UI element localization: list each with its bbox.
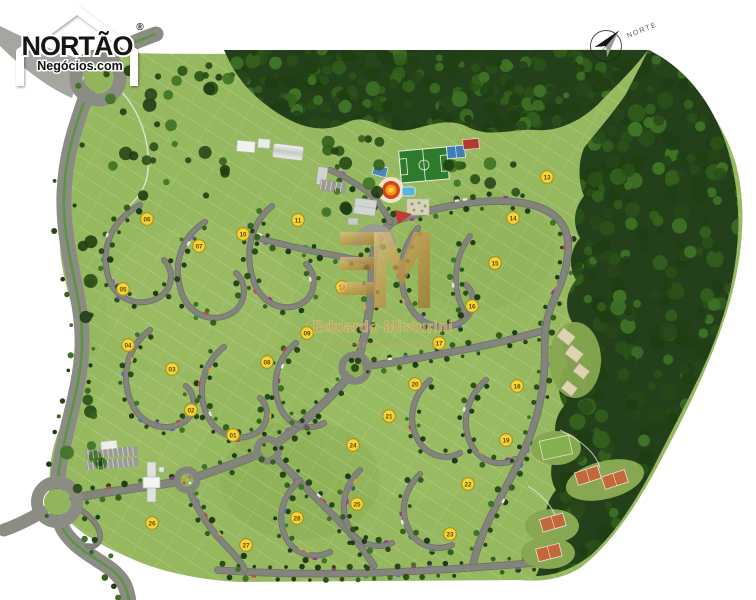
- tree-icon: [255, 241, 260, 246]
- tree-icon: [292, 435, 298, 441]
- tree-icon: [479, 462, 485, 468]
- tree-icon: [235, 292, 241, 298]
- tree-icon: [735, 109, 745, 119]
- tree-icon: [277, 534, 281, 538]
- tree-icon: [707, 74, 717, 84]
- tree-icon: [625, 218, 637, 230]
- tree-icon: [543, 103, 557, 117]
- tree-icon: [646, 85, 653, 92]
- tree-icon: [117, 230, 121, 234]
- tree-icon: [121, 481, 128, 488]
- tree-icon: [598, 310, 612, 324]
- block-badge-number: 26: [148, 520, 156, 527]
- tree-icon: [265, 394, 271, 400]
- tree-icon: [701, 552, 711, 562]
- tree-icon: [662, 531, 670, 539]
- tree-icon: [168, 258, 173, 263]
- swimming-pool: [402, 187, 415, 196]
- tree-icon: [73, 484, 83, 494]
- tree-icon: [677, 69, 686, 78]
- block-badge-number: 23: [446, 531, 454, 538]
- tree-icon: [735, 511, 742, 518]
- tree-icon: [334, 188, 341, 195]
- tree-icon: [457, 415, 462, 420]
- tree-icon: [636, 241, 648, 253]
- tree-icon: [695, 481, 705, 491]
- tree-icon: [461, 433, 465, 437]
- tree-icon: [189, 503, 193, 507]
- tree-icon: [606, 326, 619, 339]
- tree-icon: [706, 429, 716, 439]
- tree-icon: [510, 161, 517, 168]
- sport-court-blue: [447, 145, 466, 159]
- tree-icon: [251, 49, 258, 56]
- tree-icon: [91, 347, 95, 351]
- tree-icon: [652, 545, 668, 561]
- tree-icon: [393, 282, 399, 288]
- block-badge-number: 08: [263, 359, 271, 366]
- tree-icon: [347, 85, 358, 96]
- tree-icon: [417, 424, 421, 428]
- block-badge: 28: [291, 512, 304, 525]
- tree-icon: [210, 320, 216, 326]
- tree-icon: [375, 137, 385, 147]
- tree-icon: [60, 398, 65, 403]
- block-badge-number: 04: [124, 342, 132, 349]
- car-icon: [399, 511, 402, 516]
- tree-icon: [263, 44, 273, 54]
- tree-icon: [298, 484, 304, 490]
- tree-icon: [365, 51, 377, 63]
- tree-icon: [358, 552, 363, 557]
- tree-icon: [290, 495, 296, 501]
- block-badge: 04: [122, 339, 135, 352]
- tree-icon: [717, 72, 727, 82]
- tree-icon: [737, 523, 747, 533]
- tree-icon: [624, 194, 633, 203]
- tree-icon: [679, 460, 697, 478]
- tree-icon: [523, 430, 528, 435]
- tree-icon: [592, 431, 610, 449]
- master-plan-map: 0102030405060708091011121314151617181920…: [0, 0, 756, 600]
- block-badge-number: 25: [353, 501, 361, 508]
- tree-icon: [527, 415, 531, 419]
- tree-icon: [166, 294, 171, 299]
- tree-icon: [734, 503, 743, 512]
- tree-icon: [197, 395, 201, 399]
- tree-icon: [284, 482, 290, 488]
- tree-icon: [289, 420, 294, 425]
- tree-icon: [367, 547, 373, 553]
- tree-icon: [509, 484, 515, 490]
- tree-icon: [391, 117, 404, 130]
- tree-icon: [376, 43, 383, 50]
- tree-icon: [470, 240, 475, 245]
- tree-icon: [635, 227, 648, 240]
- tree-icon: [532, 100, 543, 111]
- tree-icon: [205, 62, 212, 69]
- tree-icon: [523, 87, 534, 98]
- tree-icon: [291, 111, 303, 123]
- tree-icon: [576, 72, 585, 81]
- tree-icon: [209, 517, 215, 523]
- tree-icon: [715, 555, 730, 570]
- tree-icon: [211, 430, 215, 434]
- tree-icon: [677, 55, 693, 71]
- tree-icon: [223, 424, 229, 430]
- tree-icon: [677, 511, 694, 528]
- tree-icon: [87, 441, 96, 450]
- tree-icon: [155, 73, 161, 79]
- tree-icon: [375, 60, 382, 67]
- tree-icon: [449, 211, 453, 215]
- tree-icon: [735, 500, 745, 510]
- block-badge: 18: [511, 380, 524, 393]
- tree-icon: [284, 565, 288, 569]
- tree-icon: [339, 391, 345, 397]
- tree-icon: [200, 415, 205, 420]
- tree-icon: [593, 70, 603, 80]
- tree-icon: [417, 410, 421, 414]
- tree-icon: [138, 478, 142, 482]
- tree-icon: [663, 355, 673, 365]
- tree-icon: [194, 71, 205, 82]
- tree-icon: [69, 323, 73, 327]
- tree-icon: [389, 79, 399, 89]
- tree-icon: [559, 80, 566, 87]
- tree-icon: [638, 520, 653, 535]
- tree-icon: [686, 451, 699, 464]
- tree-icon: [203, 83, 215, 95]
- block-badge-number: 24: [349, 442, 357, 449]
- tree-icon: [332, 61, 346, 75]
- tree-icon: [397, 103, 405, 111]
- tree-icon: [738, 105, 754, 121]
- tree-icon: [491, 557, 496, 562]
- tree-icon: [108, 553, 113, 558]
- tree-icon: [262, 222, 266, 226]
- tree-icon: [84, 274, 98, 288]
- tree-icon: [290, 536, 295, 541]
- block-badge: 15: [489, 257, 502, 270]
- block-badge: 21: [383, 410, 396, 423]
- tree-icon: [218, 460, 222, 464]
- block-badge-number: 05: [119, 286, 127, 293]
- tree-icon: [316, 44, 328, 56]
- tree-icon: [592, 243, 604, 255]
- tree-icon: [273, 516, 277, 520]
- tree-icon: [347, 564, 353, 570]
- tree-icon: [706, 516, 724, 534]
- tree-icon: [733, 286, 750, 303]
- tree-icon: [202, 464, 208, 470]
- tree-icon: [517, 445, 522, 450]
- car-icon: [411, 566, 416, 569]
- tree-icon: [373, 159, 384, 170]
- tree-icon: [652, 55, 662, 65]
- tree-icon: [490, 114, 499, 123]
- tree-icon: [313, 95, 323, 105]
- tree-icon: [569, 271, 573, 275]
- block-badge-number: 02: [187, 407, 195, 414]
- tree-icon: [724, 343, 732, 351]
- tree-icon: [716, 423, 730, 437]
- tree-icon: [716, 482, 723, 489]
- tree-icon: [376, 47, 385, 56]
- tree-icon: [677, 447, 690, 460]
- clubhouse-annex: [348, 218, 358, 225]
- tree-icon: [660, 62, 676, 78]
- tree-icon: [250, 229, 255, 234]
- tree-icon: [602, 208, 612, 218]
- tree-icon: [365, 247, 370, 252]
- tree-icon: [129, 151, 138, 160]
- tree-icon: [323, 577, 329, 583]
- tree-icon: [232, 453, 237, 458]
- gate-office-building: [101, 440, 118, 450]
- tree-icon: [57, 414, 61, 418]
- tree-icon: [430, 83, 441, 94]
- tree-icon: [704, 476, 711, 483]
- shed-building: [237, 140, 256, 153]
- tree-icon: [424, 538, 430, 544]
- tree-icon: [205, 531, 210, 536]
- gate-canopy: [143, 477, 160, 488]
- tree-icon: [135, 332, 140, 337]
- tree-icon: [486, 101, 497, 112]
- tree-icon: [458, 312, 464, 318]
- tree-icon: [376, 537, 382, 543]
- tree-icon: [100, 497, 106, 503]
- tree-icon: [709, 372, 723, 386]
- tree-icon: [479, 72, 490, 83]
- tree-icon: [162, 431, 166, 435]
- tree-icon: [81, 536, 87, 542]
- tree-icon: [80, 311, 92, 323]
- tree-icon: [485, 52, 500, 67]
- tree-icon: [89, 450, 102, 463]
- tree-icon: [627, 58, 633, 64]
- tree-icon: [724, 87, 736, 99]
- tree-icon: [372, 576, 377, 581]
- tree-icon: [645, 491, 656, 502]
- tree-icon: [654, 469, 668, 483]
- tree-icon: [617, 369, 629, 381]
- block-badge: 01: [227, 429, 240, 442]
- tree-icon: [340, 514, 346, 520]
- car-icon: [364, 576, 369, 578]
- tree-icon: [652, 504, 666, 518]
- tree-icon: [185, 157, 191, 163]
- tree-icon: [546, 378, 552, 384]
- tree-icon: [717, 377, 726, 386]
- tree-icon: [341, 46, 355, 60]
- tree-icon: [279, 446, 283, 450]
- tree-icon: [60, 446, 74, 460]
- tree-icon: [282, 401, 286, 405]
- tree-icon: [349, 261, 353, 265]
- tree-icon: [663, 538, 680, 555]
- block-badge: 24: [347, 439, 360, 452]
- tree-icon: [723, 416, 741, 434]
- tree-icon: [469, 409, 474, 414]
- tree-icon: [405, 273, 411, 279]
- tree-icon: [589, 272, 596, 279]
- tree-icon: [619, 554, 635, 570]
- tree-icon: [163, 90, 173, 100]
- tree-icon: [357, 77, 366, 86]
- tree-icon: [418, 477, 424, 483]
- tree-icon: [628, 356, 636, 364]
- tree-icon: [706, 445, 715, 454]
- tree-icon: [524, 457, 529, 462]
- tree-icon: [584, 295, 593, 304]
- tree-icon: [440, 331, 445, 336]
- tree-icon: [546, 395, 550, 399]
- tree-icon: [470, 194, 476, 200]
- tree-icon: [456, 307, 462, 313]
- tree-icon: [461, 397, 467, 403]
- tree-icon: [712, 244, 721, 253]
- tree-icon: [269, 57, 282, 70]
- tree-icon: [543, 305, 547, 309]
- tree-icon: [673, 521, 684, 532]
- tree-icon: [463, 291, 468, 296]
- tree-icon: [92, 537, 98, 543]
- tree-icon: [350, 540, 355, 545]
- tree-icon: [257, 278, 262, 283]
- tree-icon: [460, 561, 464, 565]
- tree-icon: [465, 340, 471, 346]
- tree-icon: [375, 307, 379, 311]
- tree-icon: [165, 119, 177, 131]
- tree-icon: [661, 281, 672, 292]
- tree-icon: [474, 294, 480, 300]
- tree-icon: [673, 574, 684, 585]
- tree-icon: [195, 517, 200, 522]
- tree-icon: [534, 384, 540, 390]
- block-badge: 02: [185, 404, 198, 417]
- guard-booth: [159, 467, 164, 472]
- tree-icon: [364, 264, 370, 270]
- tree-icon: [242, 575, 248, 581]
- tree-icon: [720, 383, 730, 393]
- tree-icon: [327, 516, 332, 521]
- car-icon: [396, 575, 401, 577]
- tree-icon: [419, 574, 425, 580]
- tree-icon: [461, 355, 465, 359]
- tree-icon: [724, 398, 732, 406]
- tree-icon: [51, 228, 57, 234]
- tree-icon: [484, 177, 496, 189]
- tree-icon: [580, 547, 589, 556]
- tree-icon: [95, 515, 100, 520]
- tree-icon: [443, 159, 454, 170]
- tree-icon: [183, 392, 187, 396]
- tree-icon: [658, 227, 666, 235]
- tree-icon: [672, 442, 686, 456]
- tree-icon: [451, 292, 455, 296]
- block-badge: 26: [146, 517, 159, 530]
- tree-icon: [483, 543, 487, 547]
- tree-icon: [270, 459, 275, 464]
- tree-icon: [363, 177, 376, 190]
- car-icon: [251, 575, 256, 578]
- tree-icon: [665, 310, 677, 322]
- tree-icon: [408, 504, 412, 508]
- tree-icon: [380, 244, 386, 250]
- car-icon: [503, 196, 508, 199]
- tree-icon: [688, 532, 695, 539]
- tree-icon: [737, 291, 748, 302]
- tree-icon: [569, 498, 586, 515]
- tree-icon: [429, 384, 435, 390]
- tree-icon: [738, 342, 755, 359]
- tree-icon: [312, 244, 317, 249]
- tree-icon: [606, 154, 620, 168]
- tree-icon: [262, 443, 266, 447]
- tree-icon: [733, 332, 746, 345]
- tree-icon: [511, 206, 516, 211]
- tree-icon: [79, 142, 84, 147]
- tree-icon: [324, 388, 329, 393]
- tree-icon: [429, 359, 433, 363]
- tree-icon: [707, 545, 715, 553]
- tree-icon: [673, 258, 680, 265]
- tree-icon: [625, 399, 637, 411]
- tree-icon: [517, 471, 523, 477]
- tree-icon: [149, 142, 158, 151]
- tree-icon: [75, 83, 81, 89]
- tree-icon: [711, 396, 722, 407]
- tree-icon: [305, 495, 309, 499]
- tree-icon: [422, 325, 427, 330]
- tree-icon: [199, 146, 212, 159]
- block-badge: 07: [193, 240, 206, 253]
- tree-icon: [646, 549, 658, 561]
- block-badge: 10: [237, 228, 250, 241]
- tree-icon: [660, 384, 677, 401]
- tree-icon: [358, 135, 365, 142]
- tree-icon: [491, 455, 496, 460]
- tree-icon: [382, 101, 393, 112]
- block-badge-number: 19: [502, 437, 510, 444]
- tree-icon: [179, 427, 185, 433]
- tree-icon: [733, 495, 742, 504]
- block-badge: 19: [500, 434, 513, 447]
- tree-icon: [602, 571, 609, 578]
- block-badge-number: 27: [242, 542, 250, 549]
- tree-icon: [88, 363, 92, 367]
- tree-icon: [108, 161, 118, 171]
- tree-icon: [339, 157, 352, 170]
- tree-icon: [417, 232, 422, 237]
- tree-icon: [463, 206, 469, 212]
- tree-icon: [733, 405, 744, 416]
- block-badge: 08: [261, 356, 274, 369]
- tree-icon: [111, 584, 117, 590]
- tree-icon: [448, 549, 454, 555]
- tree-icon: [621, 539, 629, 547]
- tree-icon: [507, 557, 511, 561]
- tree-icon: [302, 253, 306, 257]
- tree-icon: [700, 227, 712, 239]
- tree-icon: [289, 40, 304, 55]
- tree-icon: [68, 352, 74, 358]
- tree-icon: [263, 304, 267, 308]
- tree-icon: [317, 255, 323, 261]
- tree-icon: [729, 84, 744, 99]
